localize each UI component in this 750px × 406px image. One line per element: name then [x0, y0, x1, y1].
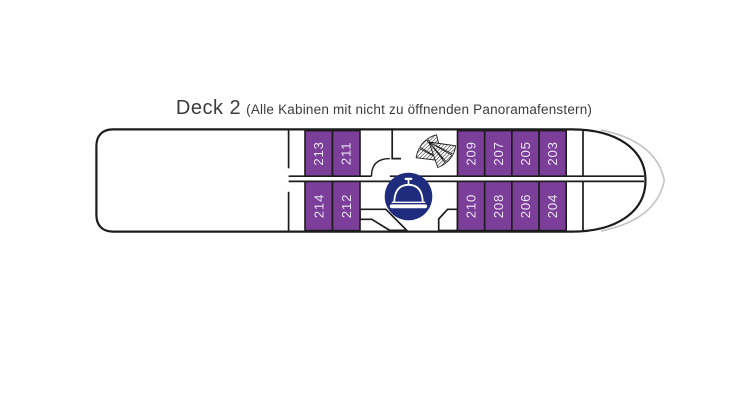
- cabin-208-number: 208: [491, 194, 506, 218]
- cabin-203[interactable]: 203: [539, 131, 566, 177]
- cabin-205-number: 205: [518, 141, 533, 165]
- cabin-207-number: 207: [491, 141, 506, 165]
- cabin-211-number: 211: [339, 142, 354, 165]
- cabin-211[interactable]: 211: [333, 131, 361, 177]
- cabin-205[interactable]: 205: [512, 131, 539, 177]
- deck-plan-page: Deck 2(Alle Kabinen mit nicht zu öffnend…: [0, 0, 750, 406]
- cabin-213-number: 213: [311, 141, 326, 165]
- cabin-208[interactable]: 208: [485, 181, 512, 230]
- cabin-206-number: 206: [518, 194, 533, 218]
- cabin-204[interactable]: 204: [539, 181, 566, 230]
- cabin-206[interactable]: 206: [512, 181, 539, 230]
- cabin-213[interactable]: 213: [305, 131, 333, 177]
- cabin-209[interactable]: 209: [458, 131, 485, 177]
- restaurant-icon: [385, 173, 433, 221]
- cabin-203-number: 203: [545, 141, 560, 165]
- cabin-207[interactable]: 207: [485, 131, 512, 177]
- cabin-209-number: 209: [464, 141, 479, 165]
- cabin-214-number: 214: [311, 194, 326, 218]
- deck-plan-drawing: 213 211 209 207 205 203 214 212: [0, 0, 750, 406]
- cabin-210-number: 210: [464, 194, 479, 218]
- cabin-210[interactable]: 210: [458, 181, 485, 230]
- cabin-214[interactable]: 214: [305, 181, 333, 230]
- cabin-212[interactable]: 212: [333, 181, 361, 230]
- cabin-204-number: 204: [545, 194, 560, 218]
- cabin-212-number: 212: [339, 194, 354, 218]
